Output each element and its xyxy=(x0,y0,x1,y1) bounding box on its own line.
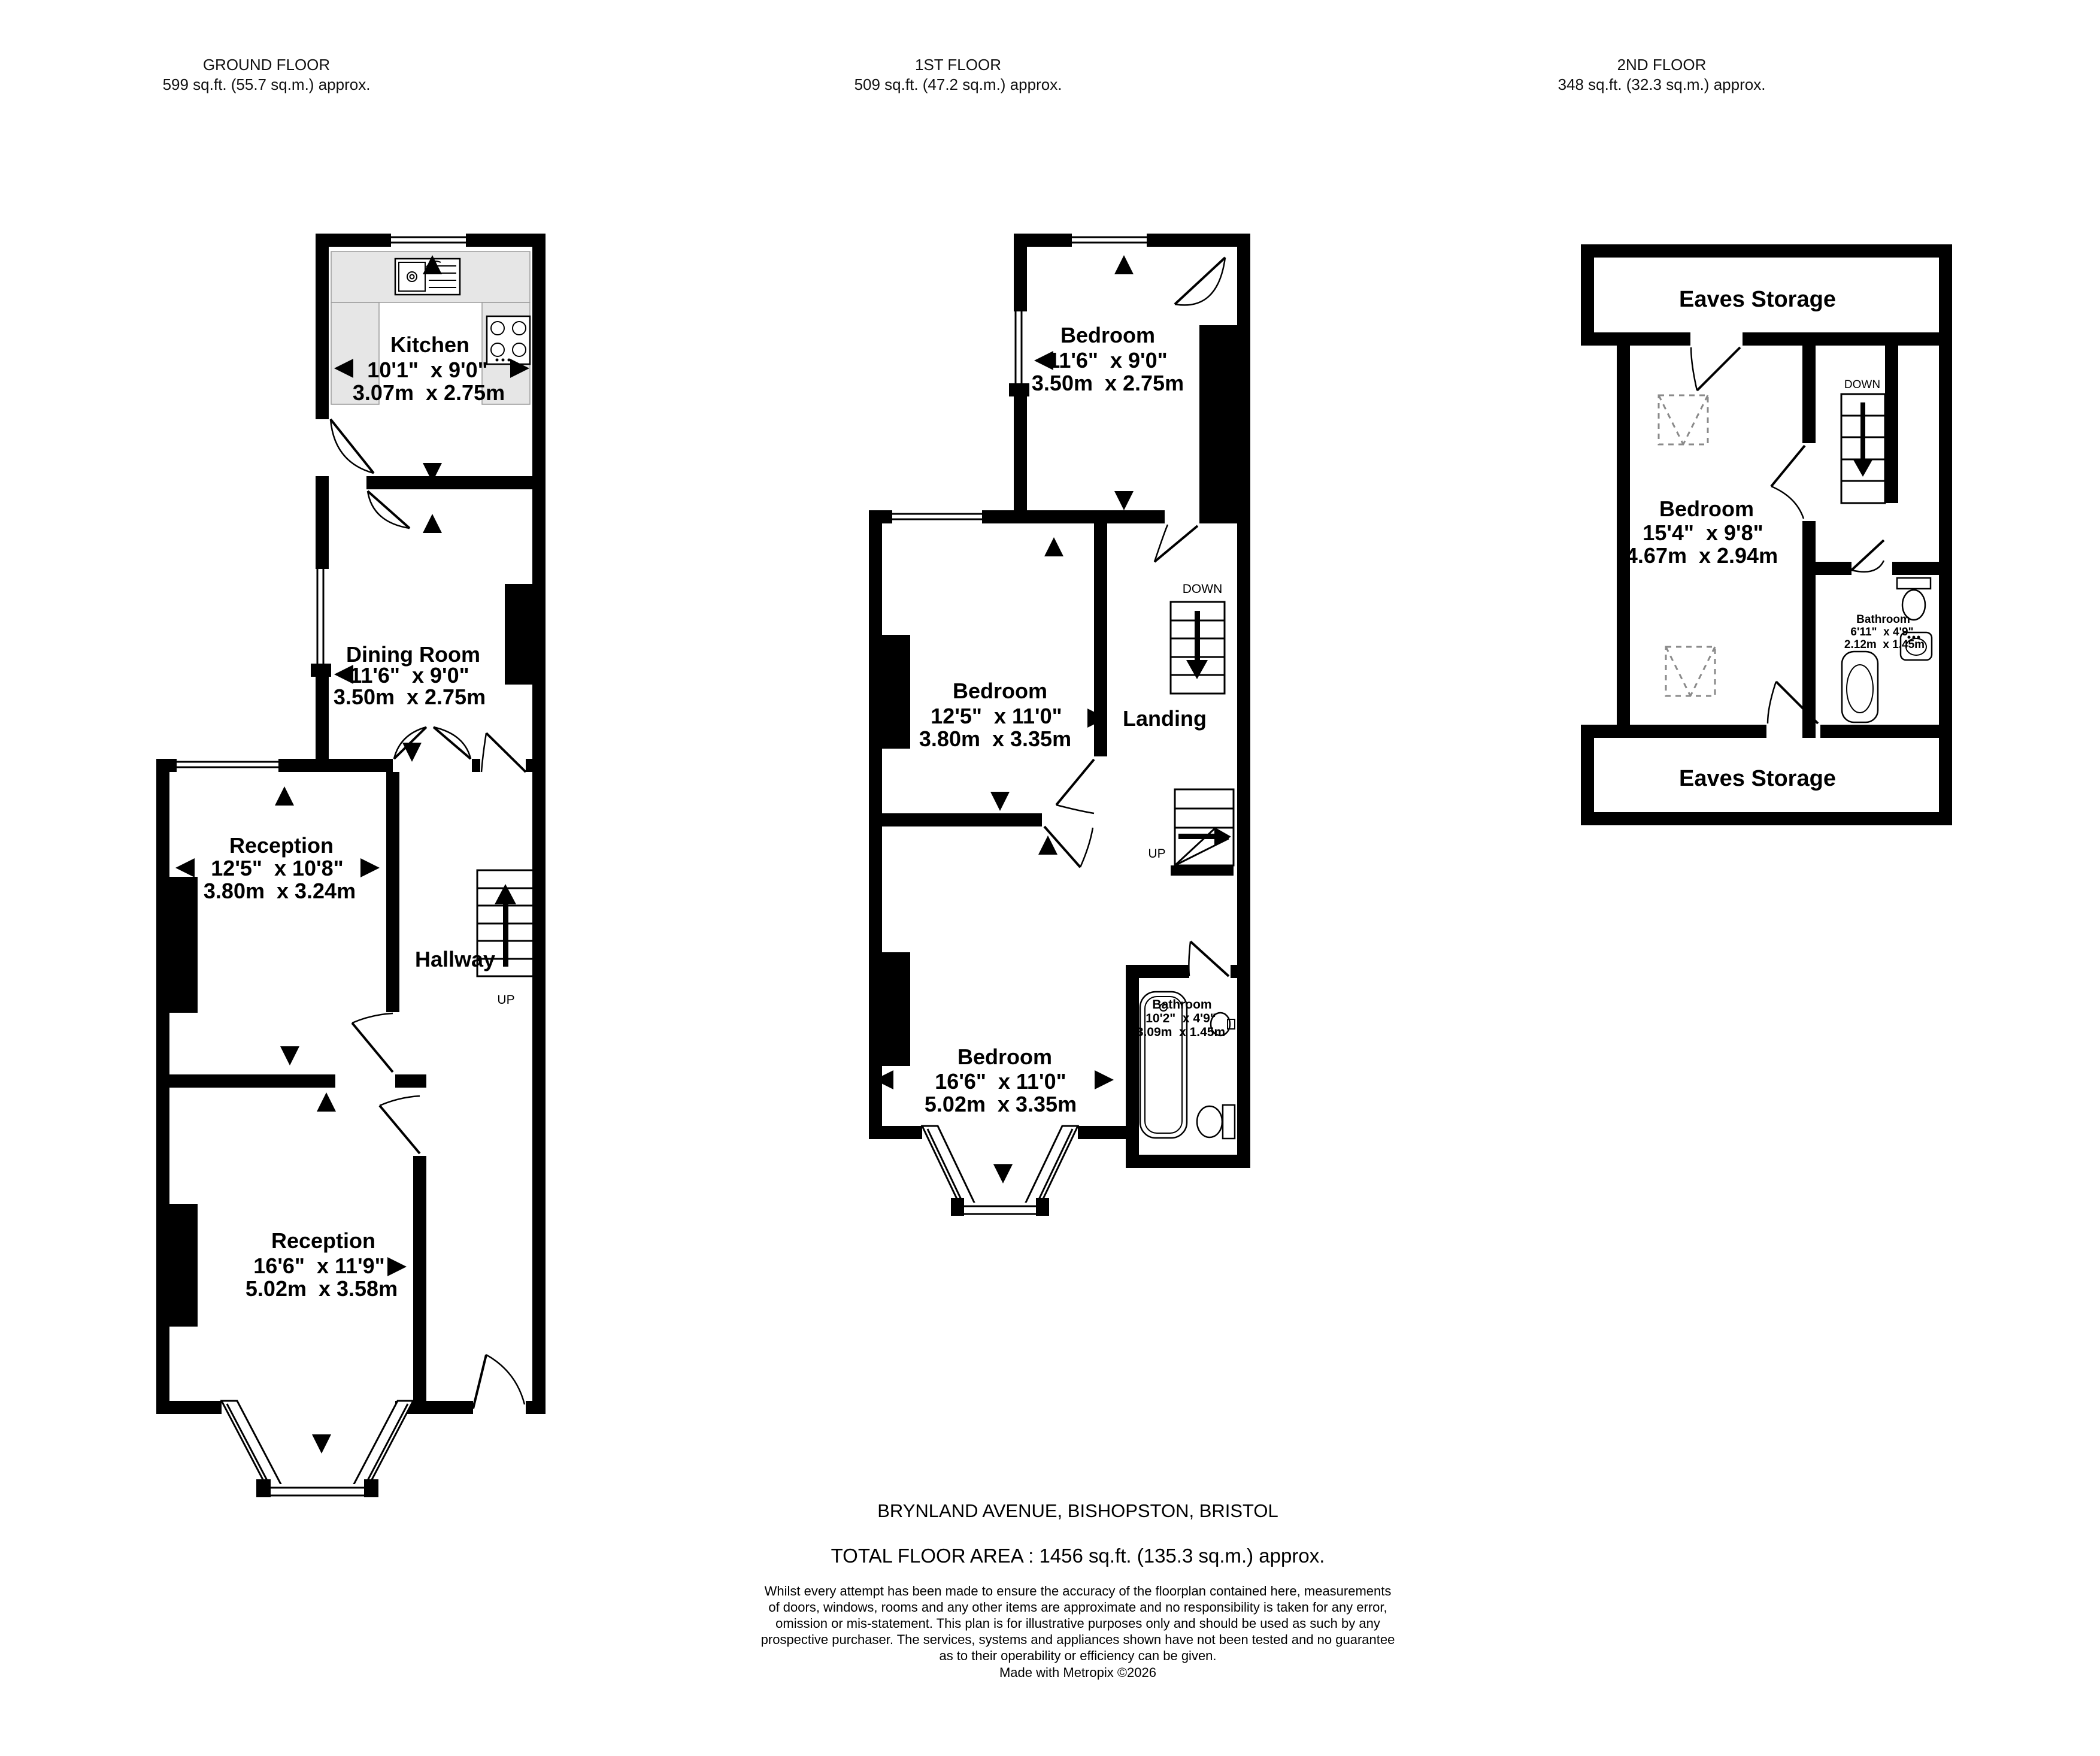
door-bathroom1 xyxy=(1189,941,1229,976)
bedroom2-window xyxy=(892,509,982,525)
room-dims-metric: 4.67m x 2.94m xyxy=(1626,543,1778,568)
measure-arrow-down xyxy=(312,1434,331,1454)
room-label-bedroom3: Bedroom xyxy=(957,1044,1052,1069)
room-dims-metric: 5.02m x 3.58m xyxy=(246,1276,398,1301)
total-floor-area: TOTAL FLOOR AREA : 1456 sq.ft. (135.3 sq… xyxy=(689,1545,1467,1567)
door-bedroom1-exit xyxy=(1154,525,1198,562)
room-label-eaves-bottom: Eaves Storage xyxy=(1679,766,1836,791)
door-hallway-top xyxy=(481,733,526,772)
room-dims-metric: 2.12m x 1.45m xyxy=(1844,638,1925,651)
second-floor-plan: Eaves Storage Eaves Storage D xyxy=(1581,244,1952,825)
measure-arrow-down xyxy=(402,743,422,762)
floorplan-drawing: Kitchen 10'1" x 9'0" 3.07m x 2.75m Dinin… xyxy=(0,0,2100,1756)
reception1-chimney xyxy=(169,877,198,1013)
measure-arrow-down xyxy=(1114,491,1134,510)
room-dims-imperial: 10'1" x 9'0" xyxy=(367,358,487,382)
room-label-bedroom1: Bedroom xyxy=(1060,323,1155,347)
stairs-first-up xyxy=(1171,789,1234,876)
skylight-1 xyxy=(1659,395,1708,444)
measure-arrow-down xyxy=(993,1164,1013,1183)
room-dims-imperial: 15'4" x 9'8" xyxy=(1643,520,1763,545)
footer: BRYNLAND AVENUE, BISHOPSTON, BRISTOL TOT… xyxy=(689,1500,1467,1681)
measure-arrow-right xyxy=(360,858,380,877)
room-dims-imperial: 16'6" x 11'9" xyxy=(253,1254,384,1278)
reception2-chimney xyxy=(169,1204,198,1327)
dining-chimney xyxy=(505,584,532,685)
stairs-up-label: UP xyxy=(497,993,514,1007)
room-dims-imperial: 10'2" x 4'9" xyxy=(1146,1012,1216,1025)
door-kitchen xyxy=(331,419,374,473)
room-label-bathroom1: Bathroom xyxy=(1152,998,1211,1012)
measure-arrow-up xyxy=(423,514,442,533)
room-dims-metric: 3.50m x 2.75m xyxy=(334,685,486,709)
measure-arrow-up xyxy=(1044,537,1063,556)
bedroom2-chimney xyxy=(882,635,910,749)
bathtub-second xyxy=(1842,652,1878,722)
stairs-down-label: DOWN xyxy=(1844,379,1880,391)
room-dims-metric: 3.80m x 3.24m xyxy=(204,879,356,903)
room-label-bathroom2: Bathroom xyxy=(1856,613,1910,626)
toilet-first xyxy=(1197,1105,1235,1139)
measure-arrow-up xyxy=(275,786,294,806)
skylight-2 xyxy=(1666,647,1715,696)
room-dims-imperial: 6'11" x 4'9" xyxy=(1850,626,1913,638)
stairs-down-label: DOWN xyxy=(1183,582,1223,596)
measure-arrow-up xyxy=(317,1092,336,1112)
measure-arrow-right xyxy=(387,1257,407,1276)
bay-window-ground xyxy=(222,1401,413,1500)
room-label-eaves-top: Eaves Storage xyxy=(1679,287,1836,312)
measure-arrow-up xyxy=(1114,255,1134,274)
room-dims-imperial: 12'5" x 10'8" xyxy=(211,856,343,880)
disclaimer-text: Whilst every attempt has been made to en… xyxy=(689,1583,1467,1664)
room-dims-imperial: 11'6" x 9'0" xyxy=(350,663,469,688)
room-dims-imperial: 11'6" x 9'0" xyxy=(1048,348,1167,373)
room-dims-metric: 3.07m x 2.75m xyxy=(353,380,505,405)
measure-arrow-left xyxy=(175,858,195,877)
front-door xyxy=(473,1355,525,1409)
measure-arrow-down xyxy=(990,792,1010,811)
first-floor-plan: Bedroom 11'6" x 9'0" 3.50m x 2.75m xyxy=(869,232,1250,1218)
stairs-first-down xyxy=(1171,602,1225,694)
door-eaves-top xyxy=(1691,347,1740,390)
door-reception1 xyxy=(352,1013,393,1072)
kitchen-window xyxy=(391,232,466,248)
room-label-bedroom2: Bedroom xyxy=(953,679,1047,703)
bedroom1-window xyxy=(1072,232,1147,248)
room-dims-metric: 3.50m x 2.75m xyxy=(1032,371,1184,395)
room-dims-metric: 5.02m x 3.35m xyxy=(925,1092,1077,1116)
stairs-up-label: UP xyxy=(1148,847,1165,861)
door-kitchen-lobby xyxy=(368,491,410,528)
stairs-second-down xyxy=(1841,394,1885,503)
door-bedroom2 xyxy=(1056,759,1094,813)
door-bedroom1-top xyxy=(1175,258,1225,305)
room-dims-metric: 3.09m x 1.45m xyxy=(1137,1025,1225,1039)
kitchen-hob xyxy=(487,316,530,364)
room-dims-metric: 3.80m x 3.35m xyxy=(919,726,1071,751)
room-label-bedroom4: Bedroom xyxy=(1659,496,1754,521)
metropix-credit: Made with Metropix ©2026 xyxy=(689,1665,1467,1681)
bedroom1-side-window xyxy=(1010,311,1028,383)
dining-window xyxy=(312,569,330,665)
room-label-reception2: Reception xyxy=(271,1228,375,1253)
ground-floor-plan: Kitchen 10'1" x 9'0" 3.07m x 2.75m Dinin… xyxy=(156,232,546,1500)
room-label-hallway: Hallway xyxy=(415,947,495,971)
bedroom3-chimney xyxy=(882,952,910,1066)
door-bathroom2 xyxy=(1851,540,1884,572)
measure-arrow-down xyxy=(280,1046,299,1065)
room-label-kitchen: Kitchen xyxy=(390,332,469,357)
kitchen-sink xyxy=(395,259,460,295)
property-address: BRYNLAND AVENUE, BISHOPSTON, BRISTOL xyxy=(689,1500,1467,1522)
room-dims-imperial: 12'5" x 11'0" xyxy=(931,704,1062,728)
room-dims-imperial: 16'6" x 11'0" xyxy=(935,1069,1066,1094)
room-label-landing: Landing xyxy=(1123,706,1207,731)
stairwell-wall xyxy=(1199,325,1237,523)
floorplan-page: GROUND FLOOR 599 sq.ft. (55.7 sq.m.) app… xyxy=(0,0,2100,1756)
room-label-reception1: Reception xyxy=(229,833,334,858)
door-bedroom-2f xyxy=(1771,446,1805,519)
reception1-window xyxy=(177,758,278,773)
door-reception2 xyxy=(380,1096,420,1153)
measure-arrow-right xyxy=(1095,1070,1114,1089)
